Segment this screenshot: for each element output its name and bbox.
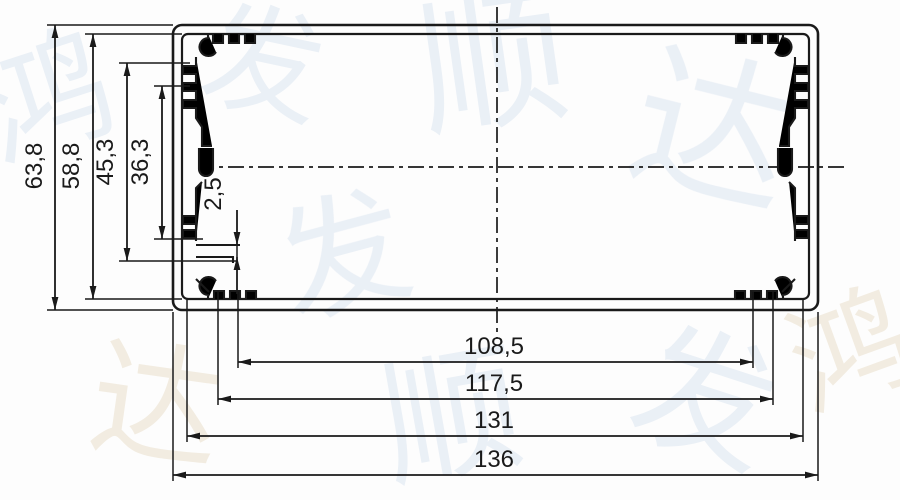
- dim-label-131: 131: [474, 407, 514, 434]
- dim-label-63-8: 63,8: [21, 143, 48, 190]
- dim-label-117-5: 117,5: [465, 370, 523, 397]
- dim-label-58-8: 58,8: [58, 143, 85, 190]
- dim-label-45-3: 45,3: [92, 139, 119, 186]
- dim-label-2-5: 2,5: [200, 177, 227, 210]
- watermark-glyph: 达: [81, 321, 231, 490]
- technical-drawing: 鸿 发 顺 达 发 达 顺 发 鸿: [0, 0, 900, 500]
- dim-label-36-3: 36,3: [127, 139, 154, 186]
- dim-label-136: 136: [474, 446, 514, 473]
- dim-label-108-5: 108,5: [464, 333, 524, 360]
